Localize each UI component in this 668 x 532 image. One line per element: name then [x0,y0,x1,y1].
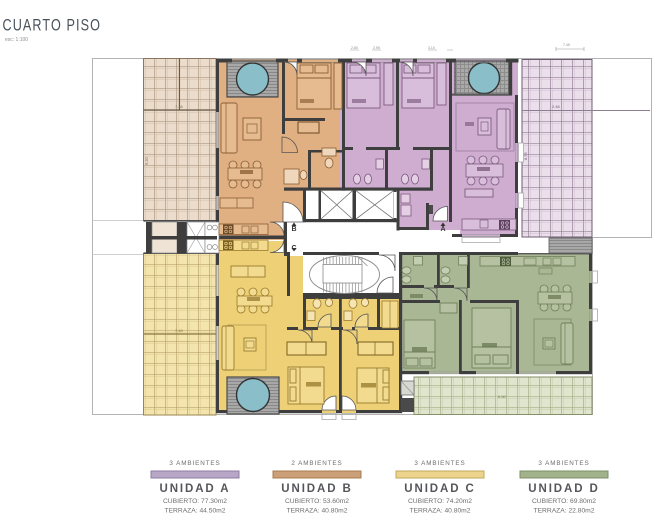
svg-text:CUBIERTO: 53.60m2: CUBIERTO: 53.60m2 [285,498,349,505]
svg-text:3 AMBIENTES: 3 AMBIENTES [414,460,465,467]
svg-text:2.46: 2.46 [552,104,561,109]
svg-text:TERRAZA: 40.80m2: TERRAZA: 40.80m2 [287,508,348,515]
svg-text:9.20: 9.20 [144,156,149,165]
svg-text:6.50: 6.50 [498,394,507,399]
svg-text:A: A [440,226,445,233]
svg-text:8.75: 8.75 [523,151,528,160]
svg-text:2.95: 2.95 [373,46,380,50]
svg-text:2.80: 2.80 [351,46,358,50]
svg-text:CUBIERTO: 74.20m2: CUBIERTO: 74.20m2 [408,498,472,505]
svg-text:TERRAZA: 44.50m2: TERRAZA: 44.50m2 [165,508,226,515]
svg-text:CUBIERTO: 69.80m2: CUBIERTO: 69.80m2 [532,498,596,505]
svg-text:7.45: 7.45 [175,328,184,333]
svg-text:UNIDAD B: UNIDAD B [281,483,352,495]
svg-text:UNIDAD C: UNIDAD C [404,483,475,495]
svg-text:UNIDAD A: UNIDAD A [160,483,231,495]
svg-text:TERRAZA: 22.80m2: TERRAZA: 22.80m2 [534,508,595,515]
svg-text:UNIDAD D: UNIDAD D [528,483,599,495]
svg-text:CUARTO PISO: CUARTO PISO [3,17,102,35]
svg-text:3 AMBIENTES: 3 AMBIENTES [169,460,220,467]
svg-text:7.45: 7.45 [563,43,570,47]
svg-text:3 AMBIENTES: 3 AMBIENTES [538,460,589,467]
svg-text:CUBIERTO: 77.30m2: CUBIERTO: 77.30m2 [163,498,227,505]
svg-text:esc: 1:100: esc: 1:100 [5,37,28,43]
svg-text:B: B [291,226,296,233]
svg-text:2 AMBIENTES: 2 AMBIENTES [291,460,342,467]
svg-text:3.10: 3.10 [428,46,435,50]
svg-text:TERRAZA: 40.80m2: TERRAZA: 40.80m2 [410,508,471,515]
svg-text:7.46: 7.46 [175,104,184,109]
